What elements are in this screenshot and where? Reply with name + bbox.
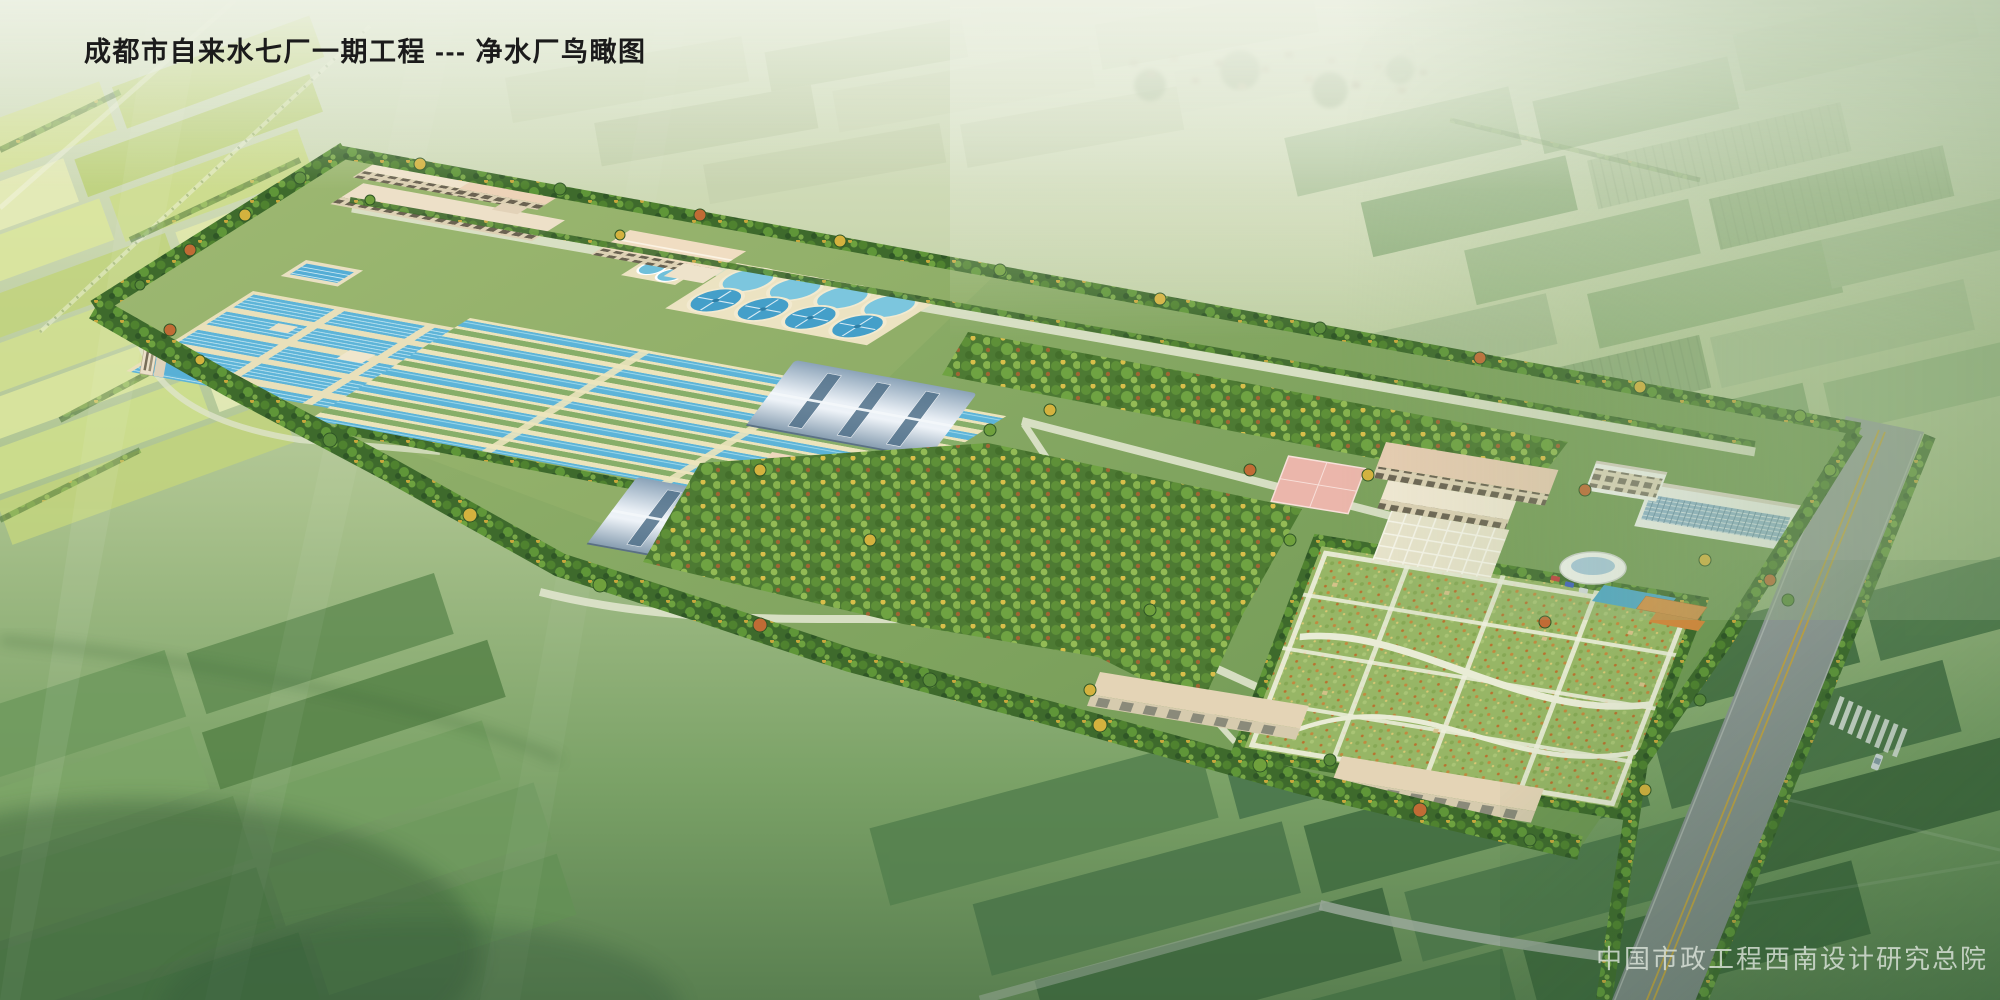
aerial-rendering-page: 成都市自来水七厂一期工程 --- 净水厂鸟瞰图 中国市政工程西南设计研究总院 [0, 0, 2000, 1000]
title-caption: 成都市自来水七厂一期工程 --- 净水厂鸟瞰图 [84, 30, 646, 69]
aerial-rendering [0, 0, 2000, 1000]
watermark-caption: 中国市政工程西南设计研究总院 [1596, 939, 1988, 976]
